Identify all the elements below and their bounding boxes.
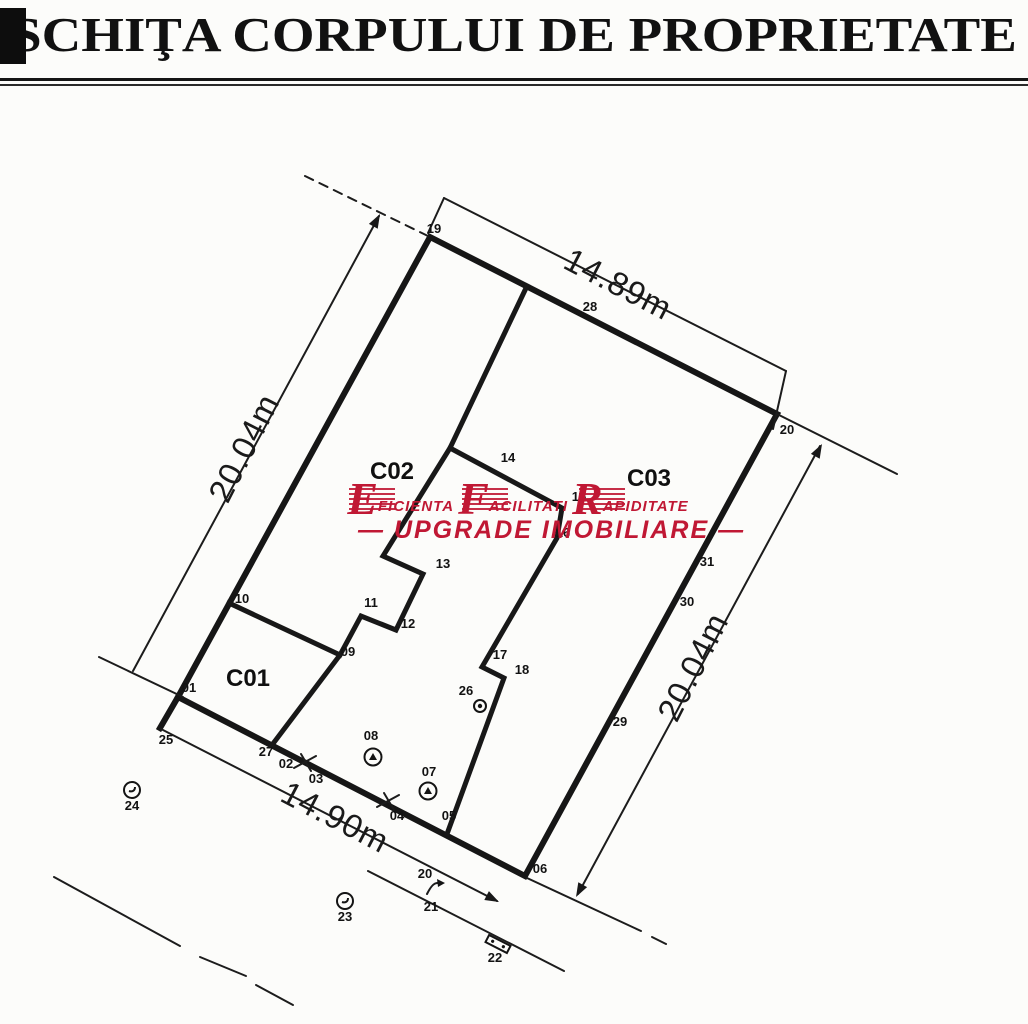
dim-arrow-bottom-end	[484, 891, 499, 902]
scanned-document-page: SCHIŢA CORPULUI DE PROPRIETATE	[0, 0, 1028, 1024]
watermark-big-r: R	[572, 482, 603, 516]
circled-plus-symbol-26	[474, 700, 486, 712]
point-label-28-1: 28	[583, 299, 597, 314]
watermark-logo: EFICIENTA FACILITATI RAPIDITATE — UPGRAD…	[358, 482, 678, 548]
circled-hook-symbol-23	[337, 893, 353, 909]
watermark-big-e: E	[347, 482, 378, 516]
dim-label-bottom: 14.90m	[275, 774, 395, 860]
point-label-08-25: 08	[364, 728, 378, 743]
watermark-word-facilitati: FACILITATI	[458, 482, 568, 516]
extension-line-19	[305, 176, 428, 236]
point-label-26-24: 26	[459, 683, 473, 698]
watermark-big-f: F	[458, 482, 489, 516]
point-label-10-14: 10	[235, 591, 249, 606]
watermark-rest-f: ACILITATI	[489, 499, 568, 514]
point-label-05-7: 05	[442, 808, 456, 823]
point-label-03-9: 03	[309, 771, 323, 786]
point-label-31-3: 31	[700, 554, 714, 569]
survey-point-labels: 1928203130290605040302270125101311120914…	[125, 221, 794, 965]
circled-hook-symbol-24	[124, 782, 140, 798]
point-label-01-12: 01	[182, 680, 196, 695]
circled-triangle-symbol-07	[420, 783, 437, 800]
point-label-19-0: 19	[427, 221, 441, 236]
point-label-22-29: 22	[488, 950, 502, 965]
watermark-rest-r: APIDITATE	[603, 499, 689, 514]
dim-arrow-right-top	[811, 444, 822, 459]
building-label-c01: C01	[226, 665, 270, 692]
point-label-29-5: 29	[613, 714, 627, 729]
point-label-27-11: 27	[259, 744, 273, 759]
street-line-southwest-dash2	[256, 985, 293, 1005]
watermark-word-eficienta: EFICIENTA	[347, 482, 454, 516]
point-label-14-19: 14	[501, 450, 516, 465]
point-label-13-15: 13	[436, 556, 450, 571]
wall-c02-c03-divider	[447, 286, 562, 834]
point-label-17-22: 17	[493, 647, 507, 662]
watermark-word-rapiditate: RAPIDITATE	[572, 482, 689, 516]
point-label-11-16: 11	[364, 595, 378, 610]
watermark-rest-e: FICIENTA	[378, 499, 454, 514]
parcel-boundary-spur-25	[160, 697, 178, 728]
street-line-southwest-dash1	[200, 957, 246, 976]
point-label-24-31: 24	[125, 798, 140, 813]
point-label-02-10: 02	[279, 756, 293, 771]
point-label-06-6: 06	[533, 861, 547, 876]
dim-arrow-left-top	[369, 214, 380, 229]
point-label-30-4: 30	[680, 594, 694, 609]
dim-line-top-tick-20	[773, 371, 786, 429]
hook-arrow-symbol-20	[427, 879, 445, 894]
point-label-12-17: 12	[401, 616, 415, 631]
dim-arrow-right-bottom	[576, 882, 587, 897]
watermark-words: EFICIENTA FACILITATI RAPIDITATE	[358, 482, 678, 516]
parcel-boundary	[178, 237, 777, 876]
point-label-09-18: 09	[341, 644, 355, 659]
extension-line-06-dash	[652, 937, 666, 944]
watermark-tagline: — UPGRADE IMOBILIARE —	[358, 516, 678, 545]
dim-label-left: 20.04m	[201, 388, 287, 508]
point-label-18-23: 18	[515, 662, 529, 677]
point-label-07-26: 07	[422, 764, 436, 779]
extension-line-01	[99, 657, 183, 697]
point-label-25-13: 25	[159, 732, 173, 747]
circled-triangle-symbol-08	[365, 749, 382, 766]
point-label-21-28: 21	[424, 899, 438, 914]
point-label-23-30: 23	[338, 909, 352, 924]
point-label-20-27: 20	[418, 866, 432, 881]
street-line-southwest	[54, 877, 180, 946]
point-label-20-2: 20	[780, 422, 794, 437]
point-label-04-8: 04	[390, 808, 405, 823]
extension-line-20	[777, 414, 897, 474]
